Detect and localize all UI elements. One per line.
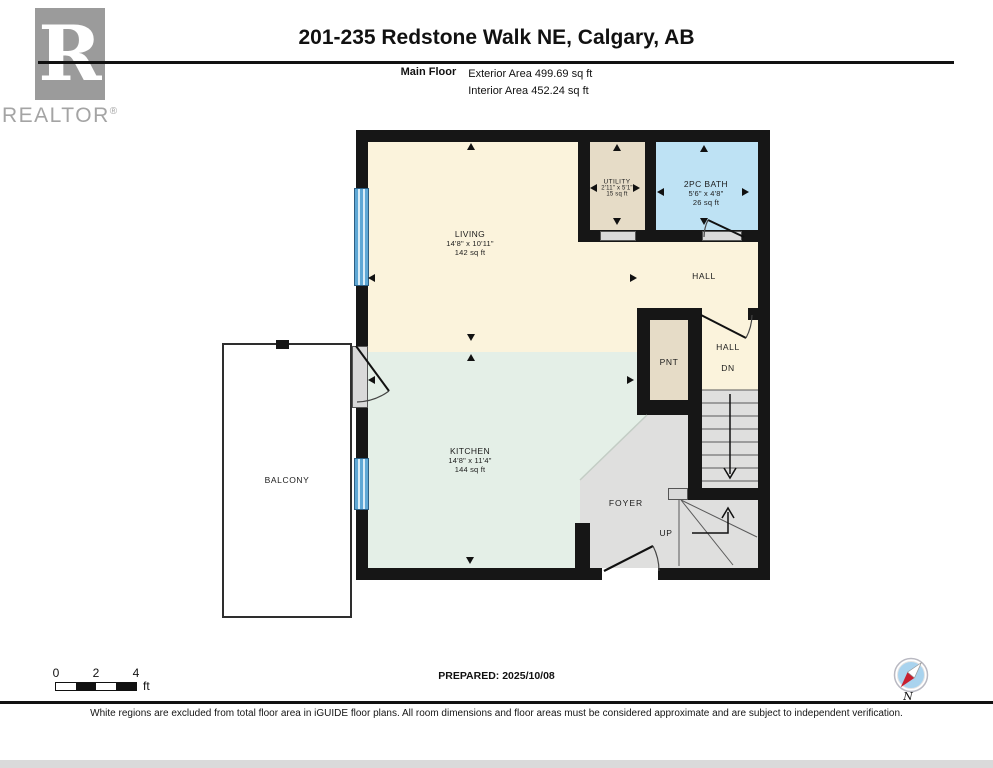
registered-mark: ®: [110, 106, 119, 117]
realtor-wordmark: REALTOR®: [2, 104, 142, 128]
balcony-label: BALCONY: [265, 475, 310, 485]
dimension-arrow-icon: [467, 143, 475, 150]
dimension-arrow-icon: [590, 184, 597, 192]
footer-divider: [0, 701, 993, 704]
floor-name: Main Floor: [401, 66, 457, 100]
bottom-band: [0, 760, 993, 768]
dimension-arrow-icon: [467, 354, 475, 361]
pantry-label: PNT: [660, 357, 679, 367]
dimension-arrow-icon: [368, 376, 375, 384]
dimension-arrow-icon: [700, 218, 708, 225]
scale-bar: [55, 682, 137, 691]
down-stairs-floor: [702, 390, 758, 490]
dimension-arrow-icon: [633, 184, 640, 192]
title-divider: [38, 61, 954, 64]
window: [354, 188, 369, 286]
exterior-area: Exterior Area 499.69 sq ft: [468, 66, 592, 83]
dimension-arrow-icon: [742, 188, 749, 196]
dimension-arrow-icon: [700, 145, 708, 152]
stair-corner-sill: [668, 488, 688, 500]
utility-label: UTILITY 2'11" x 5'1" 15 sq ft: [601, 179, 633, 198]
wall: [356, 130, 770, 142]
wall: [637, 308, 650, 415]
interior-area: Interior Area 452.24 sq ft: [468, 83, 592, 100]
window: [354, 458, 369, 510]
disclaimer-text: White regions are excluded from total fl…: [0, 708, 993, 719]
dimension-arrow-icon: [368, 274, 375, 282]
wall: [356, 568, 602, 580]
wall: [748, 308, 758, 320]
up-stairs-floor: [679, 500, 758, 568]
dimension-arrow-icon: [467, 334, 475, 341]
wall: [578, 130, 590, 242]
stair-landing-floor: [698, 320, 758, 390]
wall: [688, 308, 702, 500]
wall: [658, 568, 770, 580]
hall-lower-label: HALL: [716, 342, 740, 352]
bath-door-opening: [702, 231, 742, 241]
balcony-tick: [276, 340, 289, 349]
foyer-label: FOYER: [609, 498, 643, 508]
wall: [356, 286, 368, 346]
wall: [356, 130, 368, 188]
dimension-arrow-icon: [613, 144, 621, 151]
floor-summary: Main Floor Exterior Area 499.69 sq ft In…: [0, 66, 993, 100]
prepared-date: PREPARED: 2025/10/08: [0, 670, 993, 682]
up-label: UP: [659, 528, 672, 538]
kitchen-label: KITCHEN 14'8" x 11'4" 144 sq ft: [448, 446, 491, 474]
wall: [758, 130, 770, 580]
dimension-arrow-icon: [466, 557, 474, 564]
dimension-arrow-icon: [627, 376, 634, 384]
utility-door-opening: [600, 231, 636, 241]
wall: [356, 408, 368, 458]
balcony-door-opening: [352, 346, 368, 408]
dimension-arrow-icon: [613, 218, 621, 225]
compass-north-label: N: [898, 690, 918, 703]
living-label: LIVING 14'8" x 10'11" 142 sq ft: [446, 229, 494, 257]
wall: [645, 130, 656, 242]
dimension-arrow-icon: [630, 274, 637, 282]
wall: [575, 523, 590, 573]
page-title: 201-235 Redstone Walk NE, Calgary, AB: [0, 26, 993, 50]
wall: [688, 488, 758, 500]
dimension-arrow-icon: [657, 188, 664, 196]
hall-upper-label: HALL: [692, 271, 716, 281]
dn-label: DN: [721, 363, 734, 373]
bath-label: 2PC BATH 5'6" x 4'8" 26 sq ft: [684, 179, 728, 207]
